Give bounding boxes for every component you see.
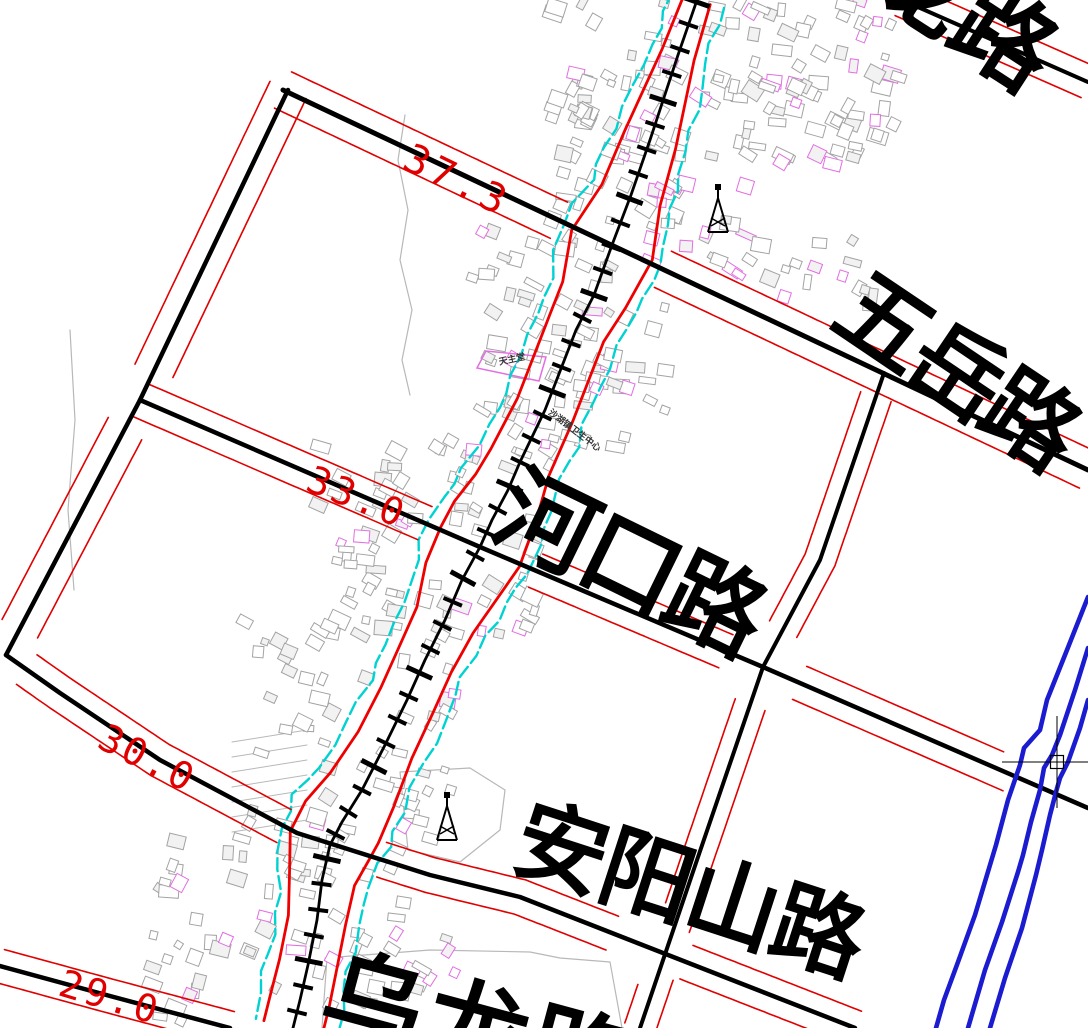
road-centerlines [0,0,1088,1028]
canal-blue-lines [936,597,1088,1028]
cad-crosshair-cursor [1002,716,1088,808]
block-edge-red-lines [0,0,1088,1028]
map-drawing [0,0,1088,1028]
cad-map-canvas: 五岳路 河口路 安阳山路 乌龙路 龙路 37.3 33.0 30.0 29.0 … [0,0,1088,1028]
